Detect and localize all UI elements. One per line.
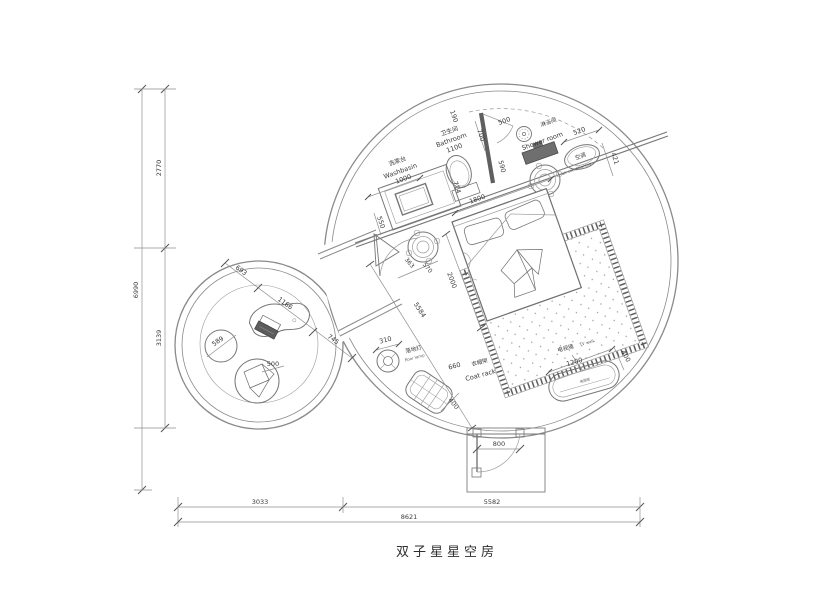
rack-label-en: Coat rack [464, 367, 496, 383]
bath-shower-divider-wall [481, 113, 493, 183]
beanbag-dim: 500 [267, 360, 279, 368]
floor-plan-page: 空调 air conditioning [0, 0, 837, 592]
shower-door-arc [497, 126, 513, 143]
dim-714: 714 [451, 180, 463, 194]
small-room-walls [175, 261, 343, 429]
dim-width-right: 5582 [484, 498, 501, 506]
toilet [441, 152, 480, 202]
drawing-title: 双子星星空房 [396, 544, 498, 560]
coat-rack: 660 衣帽架 Coat rack 400 [402, 356, 496, 417]
entry-door-dim: 800 [493, 440, 505, 448]
chain-dim-745: 745 [326, 332, 341, 346]
shower-drain [517, 127, 532, 142]
ac-label-cn: 空调 [574, 150, 588, 161]
rack-label-cn: 衣帽架 [470, 356, 488, 368]
shower-label-cn: 淋浴间 [539, 116, 557, 129]
dim-height-top: 2770 [155, 160, 163, 177]
dim-bed-length: 2000 [445, 271, 458, 289]
left-dimension-lines: 6990 2770 3139 [132, 85, 176, 494]
beanbag: 500 [235, 359, 284, 403]
chain-dim-693: 693 [234, 263, 249, 277]
dim-590: 590 [496, 159, 507, 173]
dim-190: 190 [448, 109, 460, 123]
dim-overall-width: 8621 [401, 513, 418, 521]
stool: 589 [205, 330, 237, 362]
dim-width-left: 3033 [252, 498, 269, 506]
stool-dim: 589 [210, 335, 225, 349]
dim-500: 500 [497, 115, 511, 127]
dim-height-bottom: 3139 [155, 330, 163, 347]
dim-room-diagonal: 5584 [412, 301, 428, 319]
air-conditioner: 空调 air conditioning [561, 140, 603, 176]
dim-overall-height: 6990 [132, 282, 140, 299]
floor-plan-canvas: 空调 air conditioning [0, 0, 837, 592]
tv-cabinet-label: 电视柜 [579, 376, 591, 384]
lamp-dim: 310 [378, 335, 392, 346]
rack-dim: 660 [447, 361, 461, 372]
bottom-dimension-lines: 3033 5582 8621 [174, 497, 644, 527]
chain-dim-1166: 1166 [276, 295, 294, 311]
